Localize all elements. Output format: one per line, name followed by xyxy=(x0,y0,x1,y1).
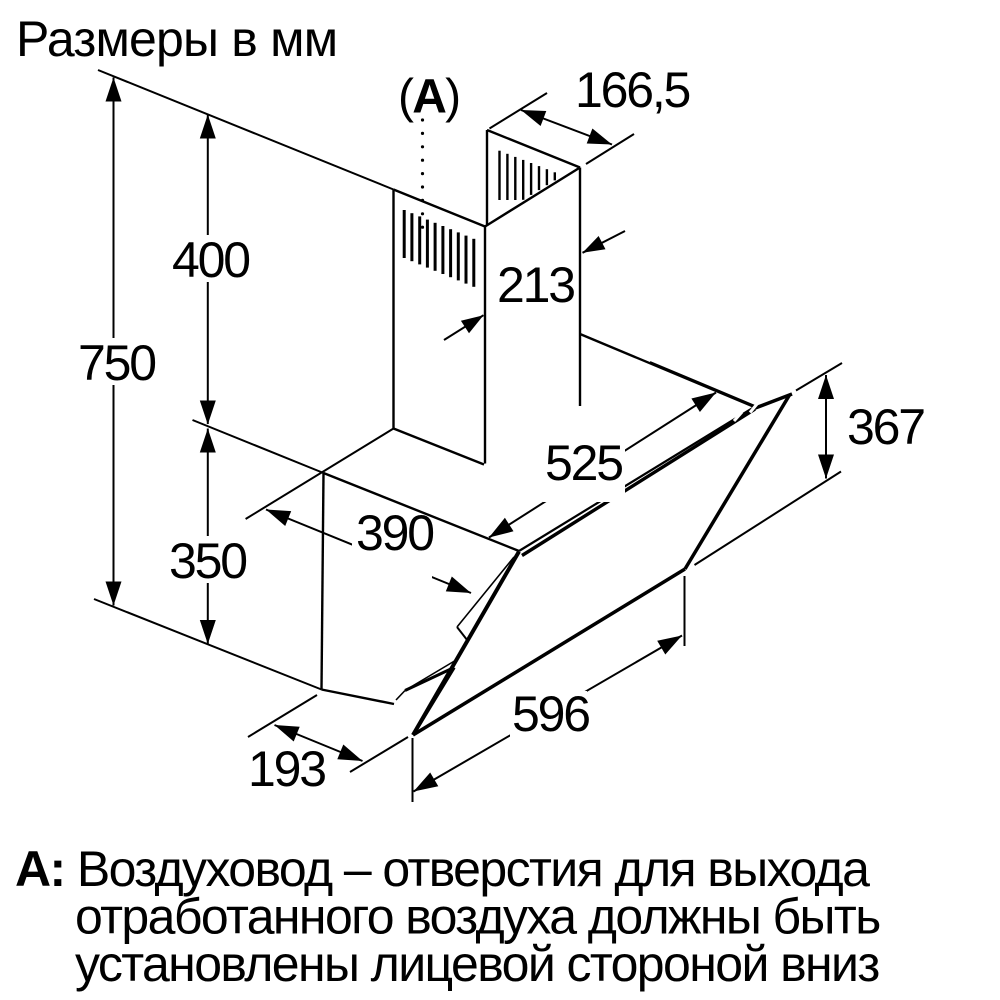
svg-text:400: 400 xyxy=(172,232,249,288)
svg-text:166,5: 166,5 xyxy=(575,62,690,118)
svg-text:193: 193 xyxy=(248,741,325,797)
svg-text:Размеры в мм: Размеры в мм xyxy=(16,11,337,67)
svg-text:525: 525 xyxy=(545,435,622,491)
svg-text:(A): (A) xyxy=(398,71,459,124)
svg-text:390: 390 xyxy=(356,505,433,561)
svg-text:367: 367 xyxy=(847,399,924,455)
svg-text:350: 350 xyxy=(169,533,246,589)
svg-text:установлены лицевой стороной в: установлены лицевой стороной вниз xyxy=(75,936,879,992)
svg-text:750: 750 xyxy=(78,335,155,391)
svg-text:213: 213 xyxy=(497,257,574,313)
svg-text:596: 596 xyxy=(512,686,589,742)
